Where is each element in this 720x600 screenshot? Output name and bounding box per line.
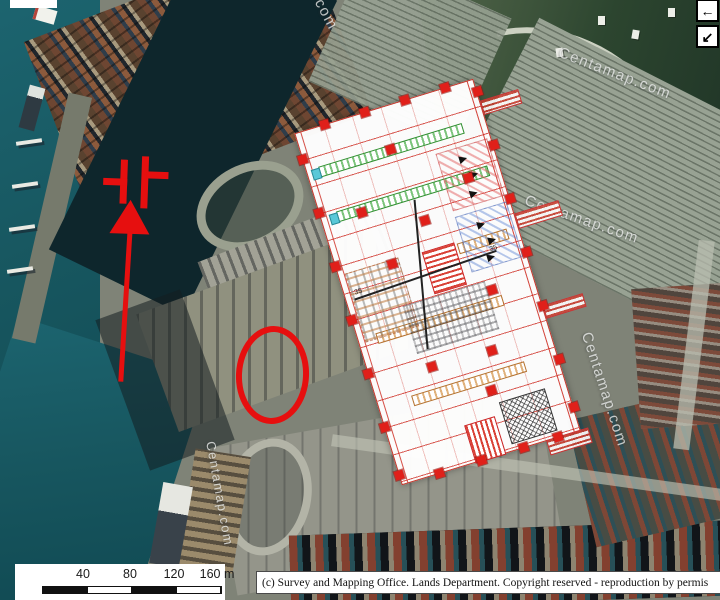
scale-label: 120 — [159, 567, 189, 581]
direction-arrow-icon — [476, 220, 486, 230]
direction-arrow-icon — [469, 189, 479, 199]
scale-bar: 40 80 120 160 m — [15, 564, 225, 600]
north-arrow-icon — [109, 199, 150, 234]
scale-label: 80 — [118, 567, 142, 581]
pan-down-left-button[interactable]: ↙ — [696, 25, 719, 48]
down-left-arrow-icon: ↙ — [702, 30, 714, 44]
scale-bar-segments — [42, 586, 222, 594]
north-char-stroke — [103, 178, 127, 186]
north-annotation: 北 — [94, 153, 172, 395]
building — [598, 16, 605, 25]
scale-label: 40 — [71, 567, 95, 581]
copyright-bar: (c) Survey and Mapping Office. Lands Dep… — [256, 571, 720, 594]
direction-arrow-icon — [458, 154, 468, 164]
north-label: 北 — [102, 153, 103, 154]
map-viewport[interactable]: com Centamap.com Centamap.com Centamap.c… — [0, 0, 720, 600]
copyright-text: (c) Survey and Mapping Office. Lands Dep… — [262, 577, 708, 589]
cropped-ui-box — [10, 0, 57, 8]
scale-label: 160 m — [195, 567, 239, 581]
north-char-stroke — [146, 171, 168, 179]
pan-left-button[interactable]: ← — [696, 0, 719, 22]
north-arrow-line — [118, 232, 132, 382]
left-arrow-icon: ← — [701, 4, 715, 18]
building — [668, 8, 675, 17]
